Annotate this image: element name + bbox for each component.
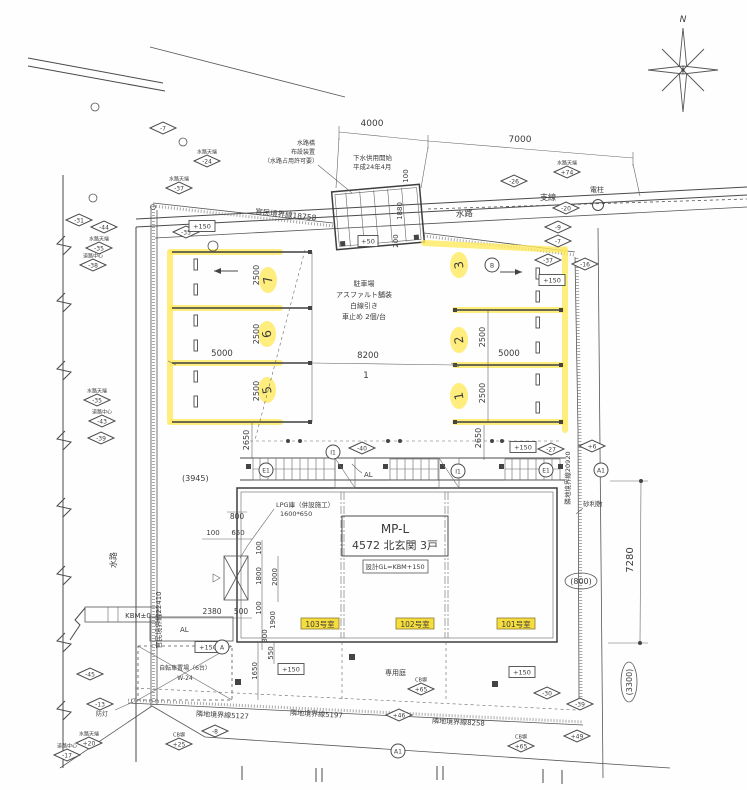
sewer-note-1: 下水供用開始: [353, 153, 393, 162]
gl-level-box: +50: [358, 236, 378, 247]
branch-wire-label: 支線: [540, 192, 556, 202]
svg-text:-30: -30: [542, 690, 552, 697]
dim-2380: 2380: [202, 607, 221, 616]
dim-5000-right: 5000: [498, 349, 520, 359]
parking-note-3: 白線引き: [350, 301, 378, 310]
svg-text:+150: +150: [514, 444, 532, 452]
dim-3945: (3945): [182, 474, 209, 483]
bicycle-note-1: 自転車置場（6台）: [159, 664, 211, 672]
parking-note-1: 駐車場: [354, 279, 375, 288]
dim-7000: 7000: [509, 135, 532, 145]
room-103: 103号室: [305, 619, 335, 629]
elevation-marker: -26: [501, 175, 527, 187]
svg-text:-9: -9: [555, 224, 561, 231]
design-gl: 設計GL=KBM+150: [365, 562, 424, 571]
svg-text:-13: -13: [95, 701, 105, 708]
gl-level-box: +150: [278, 664, 304, 675]
elevation-marker: +49: [564, 730, 590, 742]
reference-bubble: I1: [326, 445, 340, 459]
dim-1650: 1650: [251, 662, 259, 680]
gl-level-box: +150: [510, 442, 536, 453]
kbm-label: KBM±0: [125, 612, 151, 620]
site-plan-drawing: 水路 支線 電柱 水路 官民境界線18758 官民境界線22410 隣地境界線2…: [0, 0, 747, 790]
svg-text:I1: I1: [330, 449, 336, 456]
svg-text:-17: -17: [62, 752, 72, 759]
svg-text:-38: -38: [88, 262, 98, 269]
svg-text:-35: -35: [94, 245, 104, 252]
gl-level-box: +150: [509, 667, 535, 678]
building-model: MP-L: [381, 522, 410, 536]
elevation-marker: -24水路天端: [194, 149, 220, 168]
north-fence: AL: [240, 458, 565, 480]
boundary-bottom3-label: 隣地境界線8258: [432, 716, 485, 728]
elevation-marker: +20水路天端: [76, 731, 102, 750]
vent-triangle: [213, 574, 220, 582]
elevation-marker: -37: [535, 254, 561, 266]
elevation-marker: -43道路中心: [89, 409, 115, 428]
annotation-notes: 水路橋 布設装置 （水路占用許可要） 下水供用開始 平成24年4月: [264, 139, 393, 193]
compass-rose: N: [648, 15, 718, 112]
elevation-marker: +65CB塀: [508, 734, 534, 753]
svg-text:-40: -40: [357, 445, 367, 452]
dim-2650-left: 2650: [242, 430, 251, 450]
svg-text:-24: -24: [202, 158, 212, 165]
elevation-marker: -39: [567, 698, 593, 710]
svg-text:-7: -7: [555, 238, 561, 245]
lpg-note-1: LPG庫（併設施工）: [276, 500, 334, 509]
reference-bubble: B: [485, 258, 499, 272]
gl-level-box: +150: [539, 275, 565, 286]
svg-text:水路天端: 水路天端: [557, 160, 577, 167]
svg-text:-20: -20: [561, 205, 571, 212]
elevation-marker: -35水路天端: [86, 236, 112, 255]
elevation-marker: -37水路天端: [166, 176, 192, 195]
svg-text:+46: +46: [393, 712, 406, 719]
dim-3300: (3300): [625, 669, 634, 696]
dim-2650-right: 2650: [474, 428, 483, 448]
dim-2500-l3: 2500: [252, 381, 261, 401]
lane-number: 1: [363, 371, 369, 381]
elevation-marker: -9: [545, 221, 571, 233]
building-subtitle: 4572 北玄関 3戸: [352, 538, 438, 552]
dim-5000-left: 5000: [211, 349, 233, 359]
site-plan-sheet: 水路 支線 電柱 水路 官民境界線18758 官民境界線22410 隣地境界線2…: [0, 0, 747, 790]
elevation-marker: -8: [202, 725, 228, 737]
bridge-note-3: （水路占用許可要）: [264, 157, 318, 165]
dim-100b: 100: [255, 541, 263, 554]
fence-mesh-2: [390, 459, 438, 480]
room-labels: 103号室 102号室 101号室: [301, 618, 535, 629]
elevation-marker: +25CB塀: [166, 732, 192, 751]
elevation-marker: -39: [88, 432, 114, 444]
dim-100a: 100: [206, 529, 219, 537]
dim-2000: 2000: [271, 568, 279, 586]
svg-text:水路天端: 水路天端: [89, 236, 109, 243]
svg-text:+150: +150: [199, 644, 217, 652]
parking-note-4: 車止め 2個/台: [342, 312, 386, 321]
elevation-marker: -38道路中心: [80, 253, 106, 272]
svg-text:-44: -44: [99, 224, 109, 231]
parking-note-2: アスファルト舗装: [336, 290, 392, 299]
svg-text:道路中心: 道路中心: [92, 409, 112, 416]
waterway-top-label: 水路: [456, 208, 474, 220]
east-side: 砂利敷 7280 (800) (3300): [565, 228, 648, 778]
benchmark: KBM±0: [70, 607, 158, 640]
elevation-marker: +65CB塀: [408, 677, 434, 696]
elevation-marker: -45: [77, 668, 103, 680]
svg-text:-43: -43: [97, 418, 107, 425]
svg-text:-45: -45: [85, 671, 95, 678]
svg-text:+20: +20: [83, 740, 96, 747]
dim-2500-r1: 2500: [478, 327, 487, 347]
dim-8200: 8200: [357, 351, 379, 361]
svg-text:I1: I1: [455, 468, 461, 475]
svg-text:CB塀: CB塀: [515, 734, 527, 741]
al-north-label: AL: [364, 471, 373, 479]
svg-text:水路天端: 水路天端: [79, 731, 99, 738]
boundary-left-label: 官民境界線22410: [154, 591, 163, 648]
al-west-label: AL: [180, 626, 189, 634]
room-102: 102号室: [400, 619, 430, 629]
reference-bubble: E1: [259, 463, 273, 477]
svg-text:-39: -39: [575, 701, 585, 708]
svg-text:+150: +150: [513, 669, 531, 677]
svg-text:-26: -26: [509, 178, 519, 185]
west-cluster: 800 100 650 LPG庫（併設施工） 1600*650 100 1800…: [138, 500, 334, 700]
bridge-note-1: 水路橋: [297, 139, 315, 147]
svg-text:+150: +150: [282, 666, 300, 674]
svg-text:+74: +74: [561, 169, 574, 176]
reference-bubble: I1: [451, 464, 465, 478]
bicycle-shed: 自転車置場（6台） W-24: [138, 646, 232, 700]
svg-text:E1: E1: [262, 467, 270, 474]
svg-text:+65: +65: [515, 743, 528, 750]
svg-text:B: B: [490, 262, 494, 269]
bridge-note-2: 布設装置: [291, 148, 315, 156]
dim-7280: 7280: [625, 547, 636, 572]
dim-100c: 100: [255, 601, 263, 614]
dim-1800: 1800: [255, 567, 263, 585]
svg-text:+65: +65: [415, 686, 428, 693]
dim-200: 200: [392, 234, 400, 247]
svg-text:道路中心: 道路中心: [83, 253, 103, 260]
elevation-marker: -17道路中心: [54, 743, 80, 762]
dim-1900: 1900: [269, 611, 277, 629]
svg-text:-8: -8: [212, 728, 218, 735]
compass-north-label: N: [680, 15, 687, 25]
elevation-marker: -27: [538, 443, 564, 455]
utility-pole-label: 電柱: [590, 185, 604, 194]
boundary-right-label: 隣地境界線20920: [563, 451, 572, 504]
bicycle-note-2: W-24: [177, 675, 193, 682]
reference-bubble: E1: [539, 463, 553, 477]
dim-550: 550: [267, 646, 275, 659]
svg-text:水路天端: 水路天端: [87, 388, 107, 395]
reference-bubble: A1: [594, 463, 608, 477]
direction-arrow-left: [214, 268, 221, 274]
street-light-label: 防灯: [96, 710, 108, 718]
svg-text:E1: E1: [542, 467, 550, 474]
dim-800-east: (800): [570, 577, 592, 586]
dim-3300-group: (3300): [621, 662, 637, 702]
elevation-marker: -7: [150, 122, 176, 134]
dim-1880: 1880: [396, 202, 404, 220]
elevation-marker: -13: [87, 698, 113, 710]
private-garden-label: 専用庭: [385, 668, 406, 677]
sewer-note-2: 平成24年4月: [353, 162, 391, 171]
dim-2500-l1: 2500: [252, 265, 261, 285]
dim-2500-r2: 2500: [478, 383, 487, 403]
lpg-box: [224, 556, 248, 600]
dim-300: 300: [261, 629, 269, 642]
utility-pole-symbol: [593, 200, 604, 211]
elevation-marker: -35水路天端: [84, 388, 110, 407]
svg-text:水路天端: 水路天端: [197, 149, 217, 156]
svg-text:-31: -31: [74, 217, 84, 224]
dim-2500-l2: 2500: [252, 324, 261, 344]
room-101: 101号室: [501, 619, 531, 629]
svg-text:A1: A1: [394, 748, 402, 755]
elevation-marker: -44: [91, 221, 117, 233]
elevation-marker: +6: [579, 440, 605, 452]
svg-text:CB塀: CB塀: [173, 732, 185, 739]
elevation-marker: -16: [572, 258, 598, 270]
elevation-marker: -7: [545, 235, 571, 247]
svg-text:+49: +49: [571, 733, 584, 740]
dim-100-bridge: 100: [402, 169, 410, 182]
svg-text:-7: -7: [160, 125, 166, 132]
gl-level-box: +150: [189, 221, 215, 232]
reference-bubble: A1: [391, 744, 405, 758]
svg-text:-37: -37: [174, 185, 184, 192]
bridge-dims: 100 1880 200: [392, 169, 410, 247]
gravel-label: 砂利敷: [583, 499, 603, 508]
svg-text:+150: +150: [543, 277, 561, 285]
elevation-marker: +74水路天端: [554, 160, 580, 179]
elevation-marker: -40: [349, 442, 375, 454]
dim-800: 800: [230, 512, 245, 521]
svg-text:-37: -37: [543, 257, 553, 264]
svg-text:-35: -35: [92, 397, 102, 404]
elevation-marker: -30: [534, 687, 560, 699]
lpg-note-2: 1600*650: [280, 510, 312, 518]
waterway-left-label: 水路: [108, 552, 118, 568]
parking-left-block: 7 6 5 2500 2500 2500 5000: [172, 250, 312, 424]
svg-text:+6: +6: [588, 443, 597, 450]
svg-text:+150: +150: [193, 223, 211, 231]
svg-text:道路中心: 道路中心: [57, 743, 77, 750]
reference-bubble: A: [215, 640, 229, 654]
dim-500: 500: [234, 607, 249, 616]
svg-text:+50: +50: [361, 238, 375, 246]
svg-text:-39: -39: [96, 435, 106, 442]
svg-text:A1: A1: [597, 467, 605, 474]
fold-marks: [242, 766, 562, 784]
south-area: [60, 654, 670, 784]
svg-text:-27: -27: [546, 446, 556, 453]
wheel-stops-right: [536, 268, 540, 413]
wheel-stops-left: [194, 259, 198, 407]
elevation-marker: -31: [66, 214, 92, 226]
dim-4000: 4000: [361, 119, 384, 129]
entrance-porch-1: [335, 458, 355, 488]
svg-text:水路天端: 水路天端: [169, 176, 189, 183]
boundary-bottom1-label: 隣地境界線5127: [196, 709, 249, 721]
svg-text:CB塀: CB塀: [415, 677, 427, 684]
elevation-marker: +46: [386, 709, 412, 721]
parking-lane: 8200 1 駐車場 アスファルト舗装 白線引き 車止め 2個/台: [168, 250, 459, 440]
svg-text:+25: +25: [173, 741, 186, 748]
svg-text:-16: -16: [580, 261, 590, 268]
direction-arrow-right: [515, 269, 522, 275]
dim-650: 650: [231, 529, 244, 537]
